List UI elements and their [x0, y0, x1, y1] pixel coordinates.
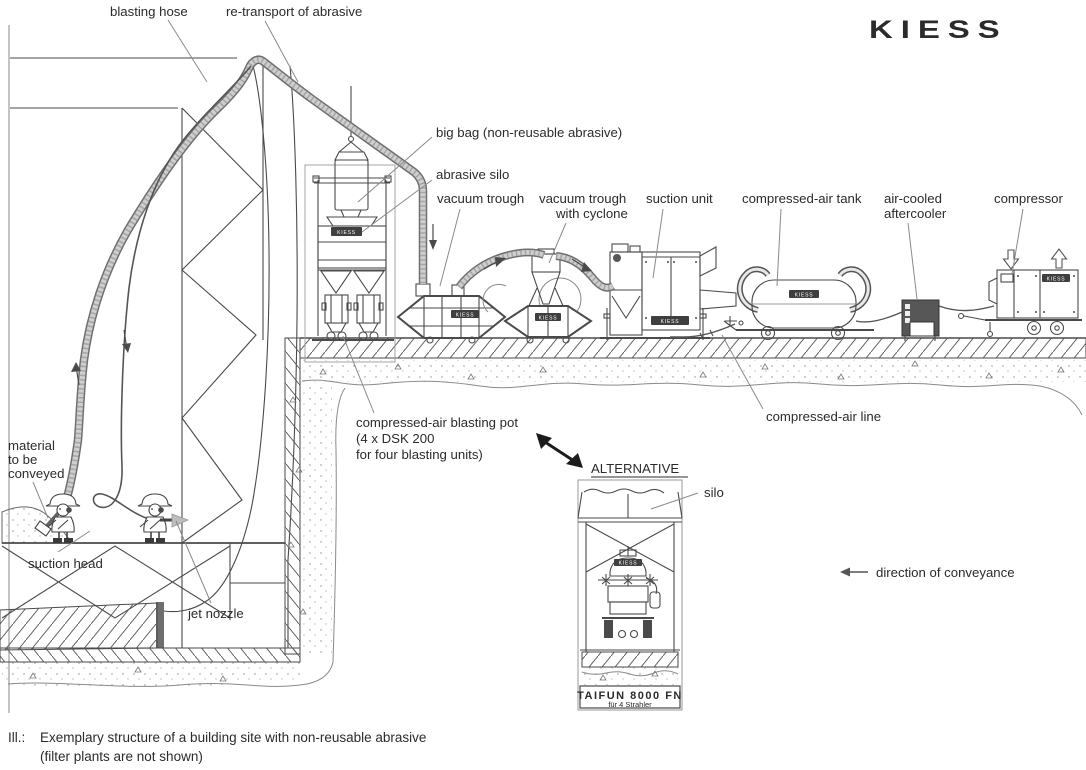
cyclone-to-suction-hose: [556, 256, 613, 288]
aftercooler-unit: [856, 300, 994, 341]
big-bag: [335, 152, 368, 217]
equipment-badge-text: KIESS: [619, 561, 638, 567]
exhaust-chute: [700, 247, 716, 276]
label-blasting-pot-3: for four blasting units): [356, 447, 483, 462]
blasting-pot: [354, 295, 383, 340]
kiess-logo: KIESS: [869, 17, 1008, 44]
label-compressor: compressor: [994, 191, 1063, 206]
site-diagram-svg: TAIFUN 8000 FN für 4 Strahler KIESS KIES…: [0, 0, 1086, 770]
alternative-double-arrow-icon: [536, 433, 583, 468]
equipment-badge-text: KIESS: [539, 316, 558, 322]
label-retransport: re-transport of abrasive: [226, 4, 362, 19]
label-aftercooler-1: air-cooled: [884, 191, 942, 206]
label-suction-unit: suction unit: [646, 191, 713, 206]
label-abrasive-silo: abrasive silo: [436, 167, 509, 182]
blast-spray: [172, 514, 188, 527]
equipment-badge-text: KIESS: [795, 293, 814, 299]
alternative-detail: TAIFUN 8000 FN für 4 Strahler: [577, 480, 683, 710]
label-compressed-air-tank: compressed-air tank: [742, 191, 862, 206]
ground-surface: [300, 338, 1086, 358]
label-material-2: to be: [8, 452, 37, 467]
label-suction-head: suction head: [28, 556, 103, 571]
label-jet-nozzle: jet nozzle: [187, 606, 244, 621]
compressed-air-tank-unit: [670, 269, 874, 339]
kiess-logo-text: KIESS: [869, 17, 1008, 44]
label-material-3: conveyed: [8, 466, 64, 481]
label-blasting-pot-2: (4 x DSK 200: [356, 431, 434, 446]
label-material-1: material: [8, 438, 55, 453]
label-vacuum-trough-cyclone-2: with cyclone: [555, 206, 628, 221]
label-blasting-hose: blasting hose: [110, 4, 188, 19]
label-direction-of-conveyance: direction of conveyance: [876, 565, 1015, 580]
label-big-bag: big bag (non-reusable abrasive): [436, 125, 622, 140]
caption-prefix: Ill.:: [8, 730, 25, 745]
compressor-unit: [959, 249, 1083, 337]
air-intake-arrow-icon: [1004, 250, 1019, 269]
label-vacuum-trough: vacuum trough: [437, 191, 524, 206]
equipment-badge-text: KIESS: [661, 319, 680, 325]
label-compressed-air-line: compressed-air line: [766, 409, 881, 424]
blasting-pot: [322, 295, 351, 340]
label-blasting-pot-1: compressed-air blasting pot: [356, 415, 518, 430]
caption-line2: (filter plants are not shown): [40, 749, 203, 764]
label-aftercooler-2: aftercooler: [884, 206, 947, 221]
caption-line1: Exemplary structure of a building site w…: [40, 730, 426, 745]
equipment-badge-text: KIESS: [456, 313, 475, 319]
equipment-badge-text: KIESS: [1047, 277, 1066, 283]
air-exhaust-arrow-icon: [1052, 249, 1067, 268]
pit-wall: [285, 338, 300, 654]
conveyance-direction-arrow-icon: [840, 568, 868, 577]
label-vacuum-trough-cyclone-1: vacuum trough: [539, 191, 626, 206]
diagram-canvas: TAIFUN 8000 FN für 4 Strahler KIESS KIES…: [0, 0, 1086, 770]
label-alternative: ALTERNATIVE: [591, 461, 679, 476]
crane-hook: [349, 137, 354, 142]
label-silo: silo: [704, 485, 724, 500]
blasting-hose-line: [93, 66, 251, 520]
taifun-subtitle-text: für 4 Strahler: [608, 700, 652, 709]
figure-caption: Ill.: Exemplary structure of a building …: [8, 730, 426, 764]
suction-unit-machine: [600, 244, 736, 340]
equipment-badge-text: KIESS: [337, 230, 356, 236]
